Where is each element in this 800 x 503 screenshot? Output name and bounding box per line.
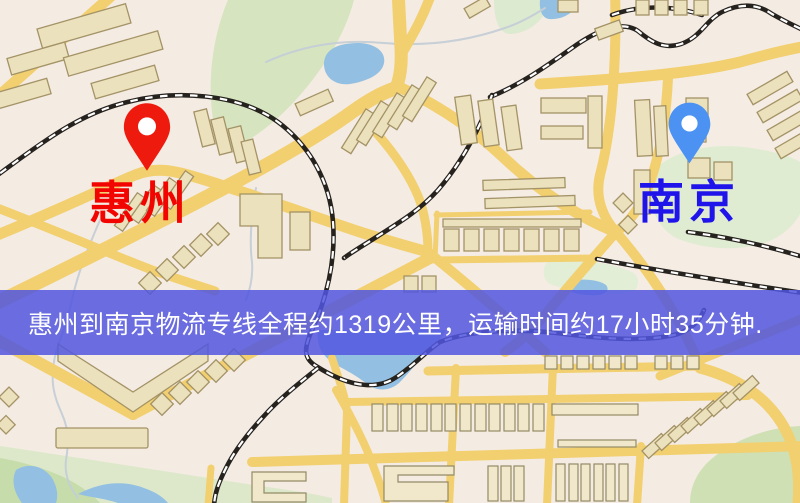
red-map-pin-icon: [122, 102, 172, 172]
destination-city-label: 南京: [638, 179, 740, 225]
origin-city-label: 惠州: [89, 180, 191, 226]
map-illustration: [0, 0, 800, 503]
route-info-banner: 惠州到南京物流专线全程约1319公里，运输时间约17小时35分钟.: [0, 290, 800, 355]
map-screenshot: 惠州 南京 惠州到南京物流专线全程约1319公里，运输时间约17小时35分钟.: [0, 0, 800, 503]
route-info-text: 惠州到南京物流专线全程约1319公里，运输时间约17小时35分钟.: [0, 305, 763, 341]
blue-map-pin-icon: [667, 100, 712, 166]
